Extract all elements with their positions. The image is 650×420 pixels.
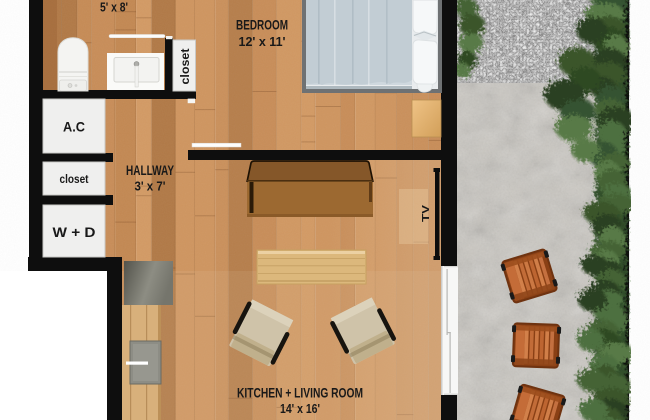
- svg-text:A.C: A.C: [63, 119, 85, 135]
- svg-text:KITCHEN + LIVING ROOM: KITCHEN + LIVING ROOM: [237, 386, 363, 401]
- svg-text:5' x 8': 5' x 8': [100, 1, 128, 15]
- svg-text:14' x 16': 14' x 16': [280, 402, 320, 416]
- svg-text:TV: TV: [420, 205, 432, 222]
- svg-text:3' x 7': 3' x 7': [135, 180, 166, 194]
- svg-text:W + D: W + D: [53, 224, 96, 240]
- svg-text:closet: closet: [178, 49, 192, 85]
- svg-text:BEDROOM: BEDROOM: [236, 18, 288, 33]
- svg-text:12' x 11': 12' x 11': [239, 35, 286, 49]
- svg-text:closet: closet: [60, 172, 89, 186]
- svg-text:HALLWAY: HALLWAY: [126, 163, 174, 178]
